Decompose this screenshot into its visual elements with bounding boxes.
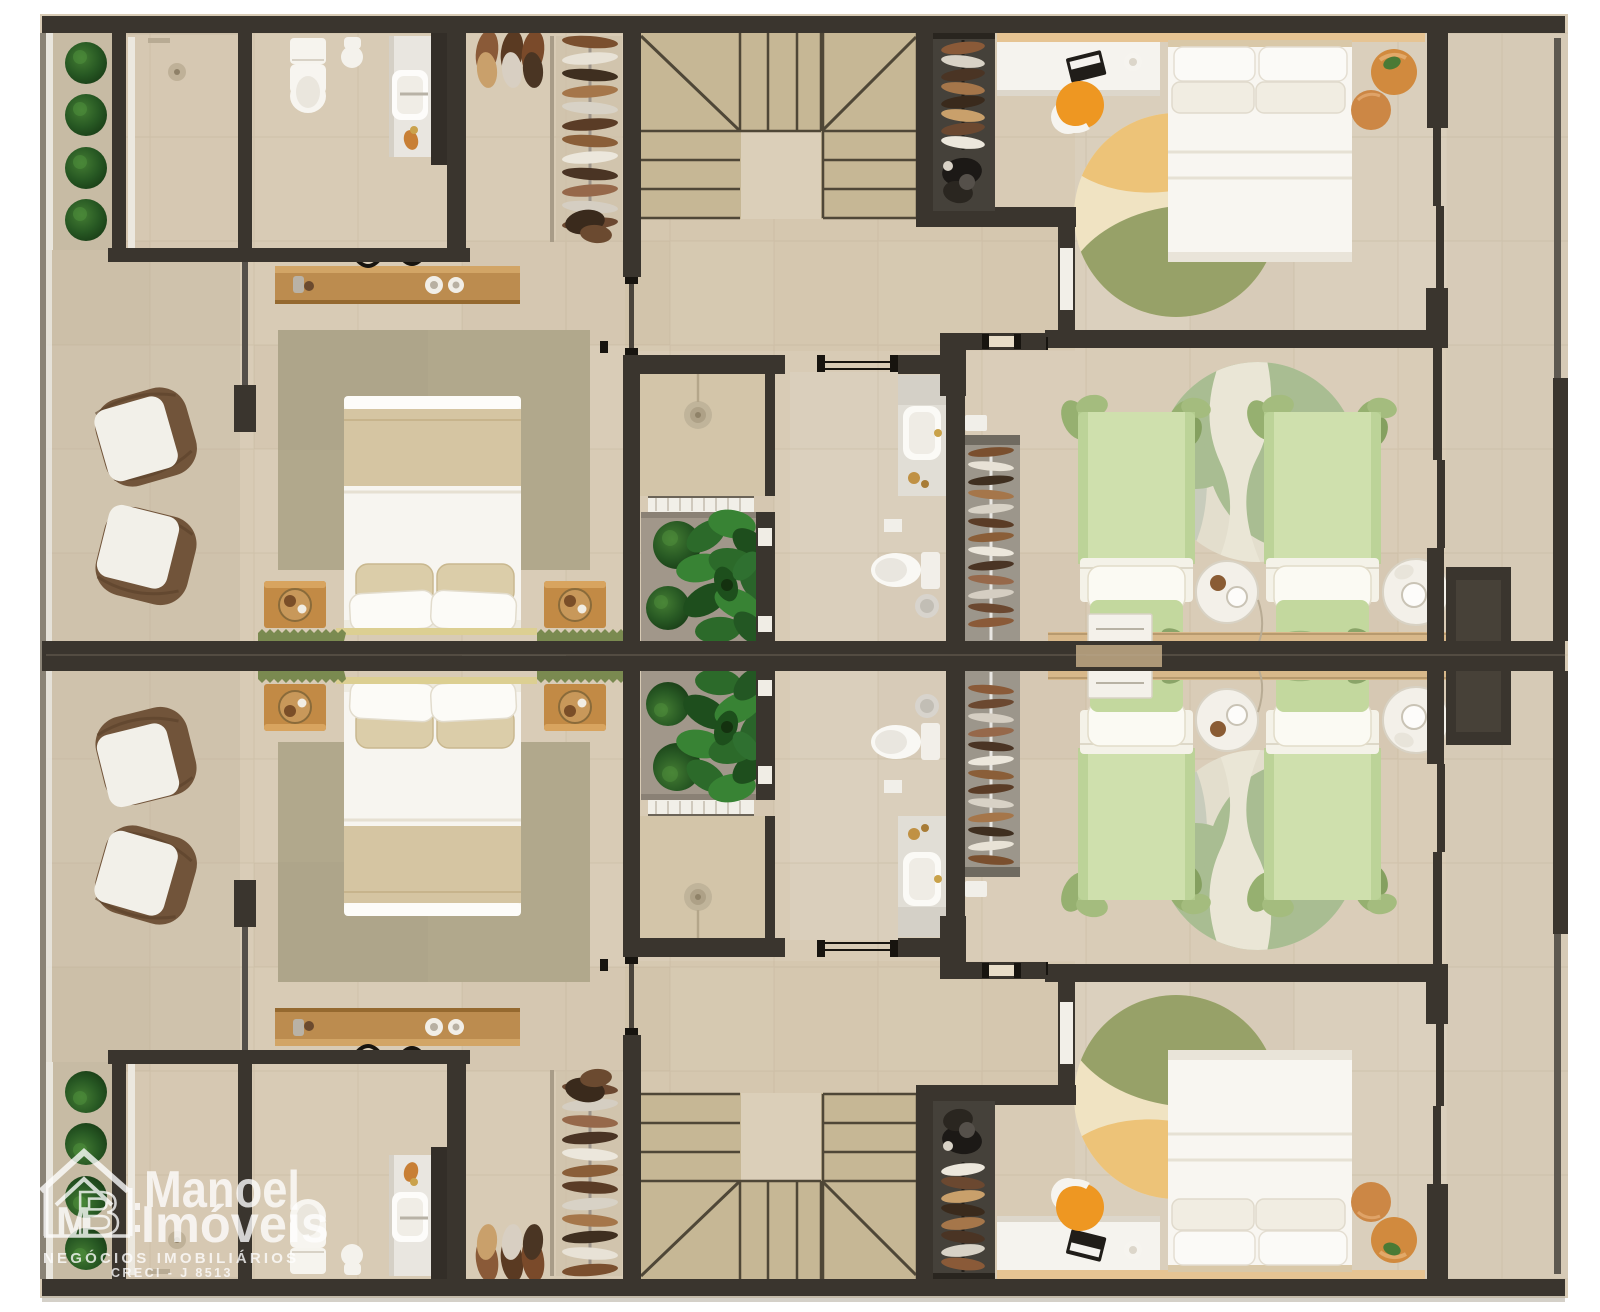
svg-text:NEGÓCIOS IMOBILIÁRIOS: NEGÓCIOS IMOBILIÁRIOS bbox=[43, 1249, 299, 1267]
svg-text:M: M bbox=[56, 1198, 91, 1245]
svg-text:Imóveis: Imóveis bbox=[141, 1196, 329, 1254]
svg-text:CRECI - J 8513: CRECI - J 8513 bbox=[111, 1266, 233, 1280]
